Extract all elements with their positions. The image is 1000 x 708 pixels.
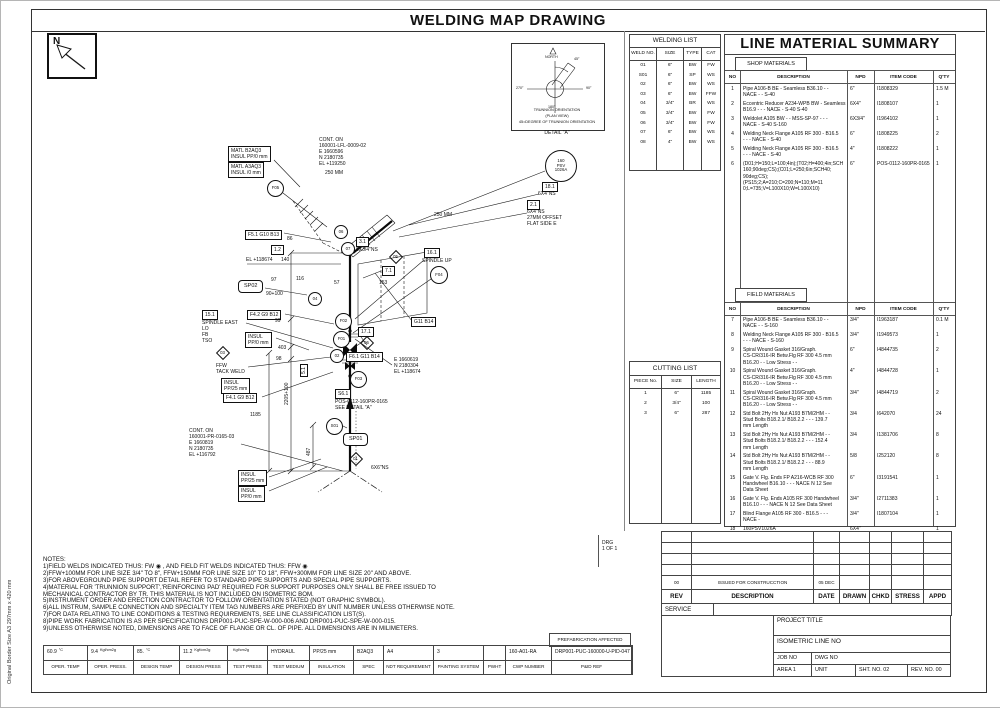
revision-entry-row: 00 ISSUED FOR CONSTRUCCTION 05 DEC 2019 [662, 576, 952, 590]
note-ffw: FFW TACK WELD [216, 363, 245, 375]
rev-no-value: 00 [936, 667, 942, 673]
revision-table: 00 ISSUED FOR CONSTRUCCTION 05 DEC 2019 … [661, 531, 952, 616]
drg-separator [598, 535, 599, 567]
lms-body: SHOP MATERIALS NO DESCRIPTION NPD ITEM C… [725, 55, 955, 526]
welding-list-row: 05 3/4" BW FW [630, 109, 720, 119]
title-separator [31, 31, 985, 32]
footer-label: PAINTING SYSTEM [434, 661, 483, 674]
drawing-sheet: WELDING MAP DRAWING Original Border Size… [0, 0, 1000, 708]
weld-f03: F03 [350, 371, 367, 388]
weld-15-1: 15.1 [202, 310, 218, 320]
footer-label: INSULATION [310, 661, 353, 674]
footer-label: NDT REQUIREMENT [384, 661, 433, 674]
project-title-cell: PROJECT TITLE [774, 616, 950, 636]
welding-list-row: 08 4" BW WS [630, 138, 720, 148]
lms-shop-row: 5 Welding Neck Flange A105 RF 300 - B16.… [725, 146, 955, 159]
cont-on-bottom: CONT. ON 160001-PR-0165-03 E 1660819 N 2… [189, 428, 234, 458]
weld-03: 03 [216, 346, 229, 359]
dim-250-top: 250 MM [325, 170, 343, 176]
detail-north-label: NORTH [545, 55, 558, 59]
lms-shop-row: 2 Eccentric Reducer A234-WPB BW - Seamle… [725, 101, 955, 114]
lms-field-row: 14 Std Bolt 2Hy Hx Nut A193 B7M/2HM - - … [725, 453, 955, 472]
support-sp02: SP02 [238, 280, 263, 293]
footer-cell: 85.°C DESIGN TEMP [134, 646, 180, 674]
lms-field-row: 13 Std Bolt 2Hy Hx Nut A193 B7M/2HM - - … [725, 432, 955, 451]
insul-pp0-bot: INSUL PP/0 mm [238, 486, 265, 502]
detail-90-label: 90° [586, 86, 591, 90]
matl-box-a: MATL B2AQ3 INSUL PP/0 mm [228, 146, 271, 162]
dim-6x6: 6X6"NS [371, 465, 389, 471]
revision-empty-row [662, 543, 952, 554]
field-materials-label: FIELD MATERIALS [735, 288, 807, 302]
lms-title: LINE MATERIAL SUMMARY [725, 35, 955, 55]
area-unit-row: AREA 1 UNIT SHT. NO. 02 REV. NO. 00 [774, 665, 950, 676]
footer-cell: 160-A01-RA CWP NUMBER [506, 646, 552, 674]
lms-field-row: 11 Spiral Wound Gasket 316/Graph. CS-CR/… [725, 390, 955, 409]
weld-3-1-size: 6X3/4"NS [356, 247, 378, 253]
revision-empty-row [662, 565, 952, 576]
cutting-list-filler [630, 419, 720, 523]
matl-box-b: MATL A3AQ3 INSUL /0 mm [228, 162, 264, 178]
footer-cell: 3 PAINTING SYSTEM [434, 646, 484, 674]
weld-06b: 06 [360, 336, 373, 349]
footer-label: CWP NUMBER [506, 661, 551, 674]
footer-value: DRP001-PUC-160000-U-PID-047 [552, 646, 631, 661]
north-label: N [53, 36, 60, 47]
insul-pp0-mid: INSUL PP/0 mm [245, 332, 272, 348]
weld-18-1-size: 6X4"NS [538, 191, 556, 197]
cutting-list-table: CUTTING LIST PIECE No. SIZE LENGTH 1 6" … [629, 361, 721, 524]
welding-list-row: 07 6" BW WS [630, 128, 720, 138]
tag-f5-1: F5.1 G10 B13 [245, 230, 282, 240]
footer-value [484, 646, 505, 661]
detail-caption-2: (PLAN VIEW) [511, 114, 603, 118]
weld-05: 05 [389, 250, 402, 263]
coords-mid: E 1660619 N 2180304 EL +118674 [394, 357, 421, 375]
shop-materials-label: SHOP MATERIALS [735, 57, 807, 71]
footer-cell: DRP001-PUC-160000-U-PID-047 P&ID REF [552, 646, 632, 674]
detail-a-title: DETAIL "A" [511, 130, 603, 136]
detail-caption-3: 45=DEGREE OF TRUNNION ORIENTATION [511, 120, 603, 124]
sht-no-value: 02 [883, 667, 889, 673]
footer-cell: 9.4Kgf/cm2g OPER. PRESS. [88, 646, 134, 674]
footer-value: Kgf/cm2g [228, 646, 267, 661]
weld-16-1: 16.1 [424, 248, 440, 258]
dim-116: 116 [296, 276, 304, 282]
title-block: PROJECT TITLE ISOMETRIC LINE NO JOB NO D… [661, 615, 951, 677]
revision-header-row: REV DESCRIPTION DATE DRAWN CHKD STRESS A… [662, 590, 952, 604]
welding-list-row: 02 6" BW WS [630, 80, 720, 90]
welding-list-title: WELDING LIST [630, 35, 720, 48]
footer-cell: PP/25 mm INSULATION [310, 646, 354, 674]
footer-value: 9.4Kgf/cm2g [88, 646, 133, 661]
welding-list-row: 06 3/4" BW FW [630, 119, 720, 129]
footer-value: B2AQ3 [354, 646, 383, 661]
welding-list-row: S01 6" SP WS [630, 71, 720, 81]
weld-07: 07 [341, 242, 355, 256]
sht-no-cell: SHT. NO. 02 [856, 665, 908, 676]
footer-cell: B2AQ3 SPEC [354, 646, 384, 674]
dim-140: 140 [281, 257, 289, 263]
footer-value: 85.°C [134, 646, 179, 661]
elev-118674: EL +118674 [246, 257, 273, 263]
lms-shop-row: 4 Welding Neck Flange A105 RF 300 - B16.… [725, 131, 955, 144]
lms-field-row: 16 Gate V. Flg. Ends A105 RF 300 Handwhe… [725, 496, 955, 509]
weld-01: 01 [349, 452, 362, 465]
weld-f01: F01 [333, 331, 350, 348]
tag-f4-1: F4.1 G9 B12 [223, 393, 257, 403]
dim-90-100: 90+100 [266, 291, 283, 297]
dim-57: 57 [334, 280, 340, 286]
lms-field-row: 10 Spiral Wound Gasket 316/Graph. CS-CR/… [725, 368, 955, 387]
footer-label: PWHT [484, 661, 505, 674]
drawing-table-divider [624, 31, 625, 531]
weld-7-1: 7.1 [382, 266, 395, 276]
footer-value: 60.9°C [44, 646, 87, 661]
tag-g11-b14: G11 B14 [411, 317, 436, 327]
unit-cell: UNIT [812, 665, 856, 676]
insul-pp25-bot: INSUL PP/25 mm [238, 470, 267, 486]
welding-list-filler [630, 147, 720, 170]
lms-field-rows: 7 Pipe A106-B BE - Seamless B36.10 - - N… [725, 317, 955, 535]
welding-list-table: WELDING LIST WELD NO. SIZE TYPE CAT 01 6… [629, 34, 721, 171]
tag-f6-1: F6.1 G11 B14 [346, 352, 383, 362]
drg-note: DRG 1 OF 1 [602, 540, 617, 552]
lms-shop-rows: 1 Pipe A106-B BE - Seamless B36.10 - - N… [725, 86, 955, 195]
weld-f02: F02 [335, 313, 352, 330]
border-size-note: Original Border Size A3 297mm x 420 mm [7, 469, 13, 684]
footer-label: P&ID REF [552, 661, 631, 674]
footer-label: DESIGN PRESS [180, 661, 227, 674]
footer-cell: Kgf/cm2g TEST PRESS [228, 646, 268, 674]
footer-cell: 60.9°C OPER. TEMP [44, 646, 88, 674]
dim-250-mid: 250 MM [434, 212, 452, 218]
footer-value: HYDRAUL [268, 646, 309, 661]
footer-label: TEST PRESS [228, 661, 267, 674]
note-line: 9)UNLESS OTHERWISE NOTED, DIMENSIONS ARE… [43, 626, 563, 633]
cutting-list-title: CUTTING LIST [630, 362, 720, 376]
weld-2-1-note: 6X4"NS 27MM OFFSET FLAT SIDE E [527, 209, 562, 227]
job-dwg-row: JOB NO DWG NO [774, 653, 950, 665]
dim-2205: 2205+100 [284, 383, 290, 405]
lms-shop-row: 6 (D01;H=150;L=100;4in);(T02;H=400;4in;S… [725, 161, 955, 192]
dim-403: 403 [278, 345, 286, 351]
cutting-list-row: 3 6" 287 [630, 409, 720, 419]
footer-label: TEST MEDIUM [268, 661, 309, 674]
weld-1-2: 1.2 [271, 245, 284, 255]
line-conditions-strip: 60.9°C OPER. TEMP 9.4Kgf/cm2g OPER. PRES… [43, 645, 633, 675]
lms-field-header: NO DESCRIPTION NPD ITEM CODE Q'TY [725, 302, 955, 316]
dwg-no-cell: DWG NO [812, 653, 950, 664]
north-arrow-box: N [47, 33, 97, 79]
revision-empty-row [662, 532, 952, 543]
notes-section: NOTES: 1)FIELD WELDS INDICATED THUS: FW … [43, 557, 563, 633]
footer-value: PP/25 mm [310, 646, 353, 661]
weld-06: 06 [334, 225, 348, 239]
logo-area [662, 616, 774, 676]
isometric-line-cell: ISOMETRIC LINE NO [774, 636, 950, 653]
footer-value: 160-A01-RA [506, 646, 551, 661]
footer-cell: PWHT [484, 646, 506, 674]
detail-caption-1: TRUNNION ORIENTATION [511, 108, 603, 112]
weld-s01: S01 [326, 418, 343, 435]
dim-153: 153 [379, 280, 387, 286]
page-title: WELDING MAP DRAWING [31, 12, 985, 29]
cont-on-top: CONT. ON 160001-LFL-0009-02 E 1660596 N … [319, 137, 366, 167]
weld-02: 02 [330, 349, 344, 363]
note-pos: POS-0112-160PR-0165 SEE DETAIL "A" [335, 399, 388, 411]
footer-cell: HYDRAUL TEST MEDIUM [268, 646, 310, 674]
psv-balloon: 160 PSV 1026A [545, 150, 577, 182]
note-spindle-east: SPINDLE EAST LO FB TSO [202, 320, 238, 344]
cutting-list-row: 1 6" 1185 [630, 389, 720, 399]
footer-value: 3 [434, 646, 483, 661]
footer-value: 11.2Kgf/cm2g [180, 646, 227, 661]
insul-pp25-mid: INSUL PP/25 mm [221, 378, 250, 394]
dim-487: 487 [306, 448, 312, 456]
weld-f05: F05 [267, 180, 284, 197]
footer-value: A4 [384, 646, 433, 661]
footer-label: SPEC [354, 661, 383, 674]
line-material-summary: LINE MATERIAL SUMMARY SHOP MATERIALS NO … [724, 34, 956, 527]
lms-field-row: 9 Spiral Wound Gasket 316/Graph. CS-CR/3… [725, 347, 955, 366]
cutting-list-header: PIECE No. SIZE LENGTH [630, 376, 720, 389]
lms-field-row: 7 Pipe A106-B BE - Seamless B36.10 - - N… [725, 317, 955, 330]
weld-5-1: 5.1 [300, 364, 308, 377]
dim-86: 86 [287, 236, 293, 242]
tag-s6-1: S6.1 [335, 389, 351, 399]
area-cell: AREA 1 [774, 665, 812, 676]
lms-shop-header: NO DESCRIPTION NPD ITEM CODE Q'TY [725, 70, 955, 84]
footer-cell: A4 NDT REQUIREMENT [384, 646, 434, 674]
revision-empty-row [662, 554, 952, 565]
dim-98: 98 [276, 356, 282, 362]
lms-field-row: 17 Blind Flange A105 RF 300 - B16.5 - - … [725, 511, 955, 524]
lms-shop-row: 1 Pipe A106-B BE - Seamless B36.10 - - N… [725, 86, 955, 99]
welding-list-header: WELD NO. SIZE TYPE CAT [630, 48, 720, 61]
cutting-list-row: 2 3/4" 100 [630, 399, 720, 409]
footer-cell: 11.2Kgf/cm2g DESIGN PRESS [180, 646, 228, 674]
lms-field-row: 15 Gate V. Flg. Ends FP A216-WCB RF 300 … [725, 475, 955, 494]
weld-04: 04 [308, 292, 322, 306]
detail-a-box: NORTH 45° 270° 90° 180° [511, 43, 605, 131]
lms-field-row: 8 Welding Neck Flange A105 RF 300 - B16.… [725, 332, 955, 345]
footer-label: OPER. TEMP [44, 661, 87, 674]
welding-list-row: 01 6" BW FW [630, 61, 720, 71]
welding-list-row: 03 6" BW FFW [630, 90, 720, 100]
support-sp01: SP01 [343, 433, 368, 446]
dim-99: 99 [275, 318, 281, 324]
title-block-right: PROJECT TITLE ISOMETRIC LINE NO JOB NO D… [774, 616, 950, 676]
welding-list-row: 04 3/4" BR WS [630, 99, 720, 109]
job-no-cell: JOB NO [774, 653, 812, 664]
weld-3-1: 3.1 [356, 237, 369, 247]
dim-1185: 1185 [250, 412, 261, 418]
note-spindle-up: SPINDLE UP [422, 258, 452, 264]
detail-270-label: 270° [516, 86, 523, 90]
dim-97: 97 [271, 277, 277, 283]
lms-field-row: 12 Std Bolt 2Hy Hx Nut A193 B7M/2HM - - … [725, 411, 955, 430]
footer-label: OPER. PRESS. [88, 661, 133, 674]
lms-shop-row: 3 Weldolet A105 BW - - MSS-SP-97 - - - N… [725, 116, 955, 129]
rev-no-cell: REV. NO. 00 [908, 665, 950, 676]
footer-label: DESIGN TEMP [134, 661, 179, 674]
detail-45-label: 45° [574, 57, 579, 61]
weld-f04: F04 [430, 266, 448, 284]
